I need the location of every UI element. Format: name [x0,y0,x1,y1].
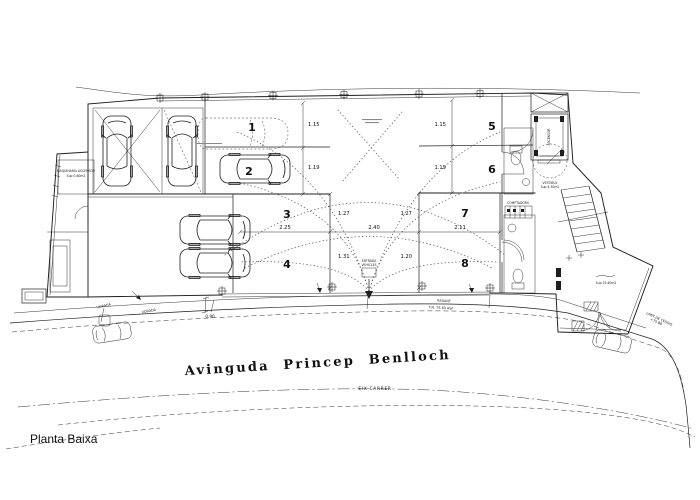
street-name: Avinguda Princep Benlloch [183,348,451,379]
space-8: 8 [461,257,469,270]
sidewalk-joints [101,295,600,330]
vehicle-entrance: ENTRADA VEHICLES [361,119,382,299]
space-3: 3 [283,208,291,221]
dim-1-15-left: 1.15 [308,122,320,128]
grade-label: RASANT [437,299,452,304]
parked-car-left [92,321,132,344]
south-wall-left [88,295,222,297]
dim-2-40: 2.40 [368,225,380,231]
elevator-label: ASCENSOR [547,128,551,146]
micro-note-mark [196,143,222,144]
car-space-2 [220,154,290,185]
east-boundary-wall [505,95,653,334]
car-bay-left [102,116,133,186]
machinery-room-area: Sup 0.80m2 [67,174,86,178]
entrance-label-2: VEHICLES [361,263,376,267]
floor-plan-drawing: ASCENSOR VESTIBUL Sup 4.50m2 COMPTADORS [0,0,700,500]
meter-cupboard: COMPTADORS [505,201,532,218]
space-1: 1 [248,121,256,134]
space-5: 5 [488,120,496,133]
patio: Sup 25.40m2 [560,268,649,330]
curb-line [10,304,690,448]
street-axis-line [18,389,694,429]
level-label: T.N. 75.60 ASF [428,305,454,310]
street-axis-label: EIX CARRER [358,386,391,391]
micro-label-mark-2 [365,122,379,123]
staircase [556,186,608,290]
dim-2-25: 2.25 [279,225,291,231]
west-wing-rooms: MAQUINARIA ASCENSOR Sup 0.80m2 [22,160,96,303]
car-lower-1 [180,215,250,246]
dim-sidewalk: 0.90 [205,314,215,319]
dim-2-11: 2.11 [454,225,466,231]
car-lower-2 [180,248,250,279]
sidewalk-inner-line [14,294,646,328]
space-4: 4 [283,258,291,271]
gutter-dashed-line [12,311,684,392]
ghost-car-dashed [198,118,288,149]
car-bay-right [167,116,198,186]
space-2: 2 [245,165,253,178]
road-far-edge-dashed [58,405,695,437]
columns [155,89,495,297]
elevator-shaft: ASCENSOR [531,93,568,163]
dim-1-27-right: 1.27 [400,211,412,217]
street-layer [6,87,695,449]
micro-label-mark-1 [362,119,382,120]
patio-area-label: Sup 25.40m2 [596,281,617,285]
vestibule-area-label: Sup 4.50m2 [541,185,560,189]
wc-upper [502,128,533,194]
street-annotations: VORADA VORADA RASANT T.N. 75.60 ASF LIMI… [96,299,673,391]
space-6: 6 [488,163,496,176]
meters-label: COMPTADORS [507,201,529,205]
dim-1-19-left: 1.19 [308,165,320,171]
garage-bays [93,108,203,194]
dim-1-19-right: 1.19 [434,165,446,171]
north-wall-inner [160,96,531,101]
dim-1-20: 1.20 [400,254,412,260]
machinery-room-label: MAQUINARIA ASCENSOR [57,169,96,173]
floor-plan-screenshot: ASCENSOR VESTIBUL Sup 4.50m2 COMPTADORS [0,0,700,500]
parking-space-numbers: 1 2 3 4 5 6 7 8 [245,120,496,271]
wc-lower [502,215,535,293]
entrance-arrowhead [365,291,373,299]
drawing-title: Planta Baixa [30,432,98,446]
cars [102,116,291,279]
dim-1-15-right: 1.15 [434,122,446,128]
dim-1-27-left: 1.27 [338,211,350,217]
dim-1-31: 1.31 [338,254,350,260]
space-7: 7 [461,207,469,220]
service-core: ASCENSOR VESTIBUL Sup 4.50m2 COMPTADORS [502,93,649,330]
grade-arrows [132,283,474,300]
